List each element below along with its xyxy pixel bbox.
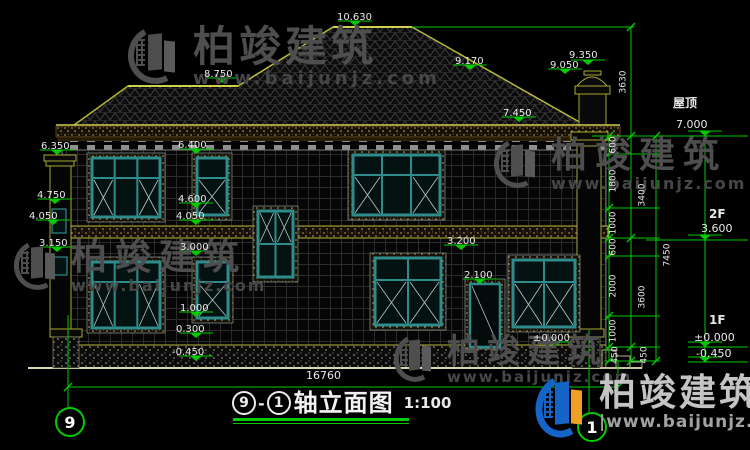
- dim-chain-outer-0: 7450: [664, 244, 673, 267]
- floor-level-roof: 7.000: [676, 119, 708, 130]
- level-label-chimney-base: 9.050: [550, 60, 579, 71]
- floor-label-roof: 屋顶: [673, 98, 697, 109]
- entry-steps: [602, 350, 642, 368]
- level-label-left-ridge: 8.750: [204, 69, 233, 80]
- cad-elevation-screenshot: 10.630 8.750 9.170 9.350 9.050 7.450 6.3…: [0, 0, 750, 450]
- dim-chain-inner-4: 2000: [610, 275, 619, 298]
- axis-bubble-9: 9: [55, 407, 85, 437]
- window: [192, 153, 232, 220]
- floor-level-1f: ±0.000: [694, 332, 735, 343]
- level-label-right-slope: 9.170: [455, 56, 484, 67]
- level-label-center-2: 4.050: [176, 211, 205, 222]
- window: [508, 255, 580, 332]
- dim-chain-mid-1: 3400: [639, 184, 648, 207]
- dim-chain-mid-0: 3630: [620, 71, 629, 94]
- window: [348, 150, 445, 220]
- window: [370, 253, 446, 330]
- dim-chain-inner-6: 450: [612, 346, 621, 363]
- dim-chain-mid-2: 3600: [639, 286, 648, 309]
- floor-label-2f: 2F: [709, 209, 726, 220]
- dim-chain-mid-3: 450: [641, 346, 650, 363]
- dim-chain-inner-0: 600: [610, 136, 619, 153]
- axis-bubble-1-text: 1: [586, 418, 597, 437]
- dim-chain-inner-2: 1000: [610, 212, 619, 235]
- entry-door: [465, 279, 505, 349]
- title-axis-to: 1: [267, 391, 291, 415]
- level-label-center-5: 0.300: [176, 324, 205, 335]
- level-label-midright-2: ±0.000: [533, 333, 570, 344]
- window: [87, 153, 165, 222]
- window: [87, 257, 165, 333]
- level-label-ridge: 10.630: [337, 12, 372, 23]
- floor-level-2f: 3.600: [701, 223, 733, 234]
- floor-level-ground: -0.450: [696, 348, 731, 359]
- title-underline: [233, 418, 409, 421]
- elevation-drawing: [0, 0, 750, 450]
- eave-cornice: [56, 125, 620, 150]
- title-axis-from: 9: [232, 391, 256, 415]
- level-label-left-2: 4.050: [29, 211, 58, 222]
- drawing-title: 9 - 1 轴立面图 1:100: [232, 391, 451, 415]
- level-label-left-0: 6.350: [41, 141, 70, 152]
- level-label-center-6: -0.450: [172, 347, 204, 358]
- level-label-center-3: 3.000: [180, 242, 209, 253]
- dim-chain-inner-5: 1000: [610, 320, 619, 343]
- dim-chain-inner-3: 600: [610, 238, 619, 255]
- level-label-left-3: 3.150: [39, 238, 68, 249]
- level-label-left-1: 4.750: [37, 190, 66, 201]
- title-dash: -: [258, 394, 265, 413]
- title-text: 轴立面图: [294, 391, 394, 415]
- level-label-midright-0: 3.200: [447, 236, 476, 247]
- level-label-midright-1: 2.100: [464, 270, 493, 281]
- dim-chain-inner-1: 1800: [610, 170, 619, 193]
- window: [253, 206, 298, 282]
- floor-label-1f: 1F: [709, 315, 726, 326]
- chimney: [575, 71, 610, 129]
- title-scale: 1:100: [404, 394, 452, 412]
- dim-total-width: 16760: [306, 370, 341, 381]
- level-label-center-4: 1.000: [180, 303, 209, 314]
- level-marker: [688, 131, 722, 136]
- level-label-right-eave: 7.450: [503, 108, 532, 119]
- axis-bubble-9-text: 9: [64, 413, 75, 432]
- level-label-center-1: 4.600: [178, 194, 207, 205]
- level-label-center-0: 6.400: [178, 140, 207, 151]
- level-marker: [688, 235, 722, 240]
- axis-bubble-1: 1: [577, 412, 607, 442]
- title-underline-2: [233, 423, 409, 424]
